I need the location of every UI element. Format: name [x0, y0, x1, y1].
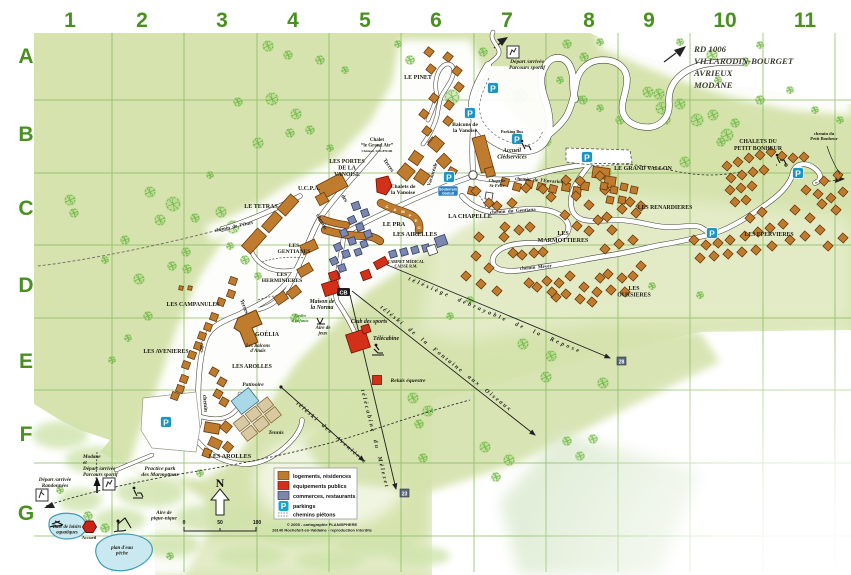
- svg-text:la Norma: la Norma: [311, 305, 334, 311]
- svg-text:la Vanoise: la Vanoise: [391, 190, 416, 196]
- svg-text:4: 4: [287, 9, 299, 32]
- svg-text:LE TETRAS: LE TETRAS: [244, 204, 278, 210]
- svg-text:Clédservices: Clédservices: [497, 154, 527, 160]
- svg-text:© 2005 - cartographie PLANISPH: © 2005 - cartographie PLANISPHERE: [287, 522, 358, 527]
- svg-text:Tennis: Tennis: [268, 430, 283, 436]
- svg-text:équipements publics: équipements publics: [293, 484, 347, 490]
- svg-text:Petit Bonheur: Petit Bonheur: [810, 136, 837, 141]
- svg-text:Parcours sportif: Parcours sportif: [509, 65, 546, 71]
- svg-text:Télécabine: Télécabine: [373, 336, 400, 342]
- svg-text:Accueil: Accueil: [82, 535, 97, 540]
- svg-text:G: G: [18, 502, 34, 525]
- svg-text:aquatiques: aquatiques: [56, 530, 78, 535]
- svg-text:P: P: [467, 109, 473, 119]
- svg-text:1: 1: [64, 9, 76, 32]
- svg-text:PETIT BONHEUR: PETIT BONHEUR: [734, 146, 783, 152]
- svg-text:D: D: [18, 274, 33, 297]
- svg-text:plan d'eau: plan d'eau: [110, 546, 133, 551]
- svg-text:Base de loisirs: Base de loisirs: [52, 525, 82, 530]
- svg-text:Accueil: Accueil: [502, 148, 521, 154]
- svg-text:Randonnées: Randonnées: [42, 483, 69, 489]
- svg-text:28: 28: [619, 360, 625, 366]
- svg-text:CB: CB: [340, 290, 348, 296]
- svg-text:CABINET MÉDICAL: CABINET MÉDICAL: [388, 259, 425, 264]
- svg-text:chemins piétons: chemins piétons: [293, 513, 336, 519]
- svg-text:commerces, restaurants: commerces, restaurants: [293, 494, 355, 500]
- svg-text:26140 Rochefort-en-Valdaïne -: 26140 Rochefort-en-Valdaïne - reproducti…: [272, 528, 373, 533]
- svg-text:P: P: [490, 84, 496, 94]
- svg-text:23: 23: [402, 492, 408, 498]
- svg-text:RD 1006: RD 1006: [693, 44, 727, 54]
- svg-text:P: P: [409, 213, 412, 218]
- svg-text:CHALETS DU: CHALETS DU: [739, 139, 777, 145]
- svg-text:VILLARODIN-BOURGET: VILLARODIN-BOURGET: [694, 56, 794, 66]
- svg-text:GENTIANES: GENTIANES: [278, 249, 311, 255]
- svg-text:la Vanoise: la Vanoise: [453, 128, 478, 134]
- svg-text:P: P: [709, 229, 715, 239]
- svg-text:LES PORTES: LES PORTES: [329, 159, 364, 165]
- svg-text:MARMOTTIERES: MARMOTTIERES: [538, 238, 589, 244]
- svg-text:VANOISE: VANOISE: [334, 172, 360, 178]
- svg-text:Parking Bus: Parking Bus: [501, 129, 524, 134]
- svg-text:Patinoire: Patinoire: [242, 382, 264, 388]
- svg-text:O: O: [417, 225, 420, 230]
- svg-text:A: A: [394, 207, 397, 212]
- svg-text:7: 7: [501, 9, 513, 32]
- svg-text:LE PINET: LE PINET: [404, 75, 432, 81]
- svg-text:10: 10: [713, 9, 736, 32]
- svg-text:Maison de: Maison de: [309, 299, 335, 305]
- svg-text:St-Félix: St-Félix: [489, 183, 505, 188]
- svg-text:logements, résidences: logements, résidences: [293, 474, 351, 480]
- svg-text:9: 9: [643, 9, 655, 32]
- svg-text:LE GRAND VALLON: LE GRAND VALLON: [614, 166, 672, 172]
- svg-text:HERMINIERES: HERMINIERES: [262, 278, 302, 284]
- svg-text:50: 50: [217, 520, 223, 526]
- svg-text:8: 8: [583, 9, 595, 32]
- svg-text:pêche: pêche: [115, 552, 129, 557]
- svg-text:LES RENARDIERES: LES RENARDIERES: [638, 205, 693, 211]
- svg-text:d'Anaïs: d'Anaïs: [250, 349, 265, 354]
- svg-text:0: 0: [183, 520, 186, 526]
- svg-text:LES EPERVIERES: LES EPERVIERES: [744, 232, 793, 238]
- svg-text:parkings: parkings: [293, 504, 315, 510]
- svg-text:Aire de: Aire de: [315, 326, 332, 331]
- svg-text:LES AIRELLES: LES AIRELLES: [393, 231, 438, 238]
- svg-text:P: P: [281, 502, 287, 511]
- svg-text:6: 6: [430, 9, 442, 32]
- svg-text:des Marmottons: des Marmottons: [141, 472, 178, 478]
- svg-text:“le Grand Air”: “le Grand Air”: [361, 143, 394, 149]
- svg-text:MODANE: MODANE: [693, 80, 733, 90]
- svg-text:LES CAMPANULES: LES CAMPANULES: [167, 302, 220, 308]
- svg-text:F: F: [20, 423, 33, 446]
- svg-text:E: E: [415, 218, 418, 223]
- svg-text:DE LA: DE LA: [338, 166, 356, 172]
- svg-text:B: B: [18, 123, 33, 146]
- svg-text:Château, SOGENOR: Château, SOGENOR: [362, 149, 393, 153]
- svg-text:LA CHAPELLE: LA CHAPELLE: [448, 213, 492, 220]
- svg-text:CAISSE R.M.: CAISSE R.M.: [395, 264, 418, 268]
- svg-text:C: C: [18, 197, 33, 220]
- svg-text:LES AROLLES: LES AROLLES: [232, 364, 272, 370]
- svg-text:N: N: [216, 476, 225, 490]
- svg-text:11: 11: [794, 9, 817, 32]
- svg-text:jeux: jeux: [318, 331, 328, 336]
- svg-text:Gratuit: Gratuit: [442, 192, 455, 196]
- svg-text:P: P: [446, 173, 452, 183]
- svg-text:A: A: [18, 45, 33, 68]
- svg-text:d'enfants: d'enfants: [292, 318, 309, 323]
- svg-text:LES AVENIERES: LES AVENIERES: [143, 349, 188, 355]
- svg-text:GOÉLIA: GOÉLIA: [255, 330, 280, 338]
- svg-text:LE PRA: LE PRA: [383, 221, 406, 228]
- svg-text:U.C.P.A.: U.C.P.A.: [298, 186, 321, 192]
- svg-text:P: P: [514, 135, 520, 145]
- svg-text:5: 5: [359, 9, 371, 32]
- svg-text:E: E: [19, 350, 33, 373]
- svg-text:AVRIEUX: AVRIEUX: [693, 68, 734, 78]
- svg-text:LES: LES: [557, 231, 569, 237]
- svg-text:Relais équestre: Relais équestre: [390, 378, 426, 384]
- svg-text:LES AROLLES: LES AROLLES: [209, 453, 252, 460]
- svg-text:OURSIERES: OURSIERES: [617, 292, 651, 298]
- svg-text:des: des: [198, 345, 205, 353]
- svg-text:P: P: [584, 153, 590, 163]
- svg-text:P: P: [795, 169, 801, 179]
- svg-text:Parcours sportif: Parcours sportif: [83, 472, 119, 478]
- svg-text:pique-nique: pique-nique: [150, 516, 177, 522]
- svg-text:3: 3: [216, 9, 228, 32]
- svg-text:LES: LES: [629, 286, 640, 292]
- svg-text:C: C: [386, 204, 389, 209]
- svg-text:P: P: [163, 418, 169, 428]
- svg-text:100: 100: [253, 520, 262, 526]
- svg-text:Club des sports: Club des sports: [351, 319, 388, 325]
- svg-text:2: 2: [136, 9, 148, 32]
- svg-text:Chalet: Chalet: [370, 138, 385, 143]
